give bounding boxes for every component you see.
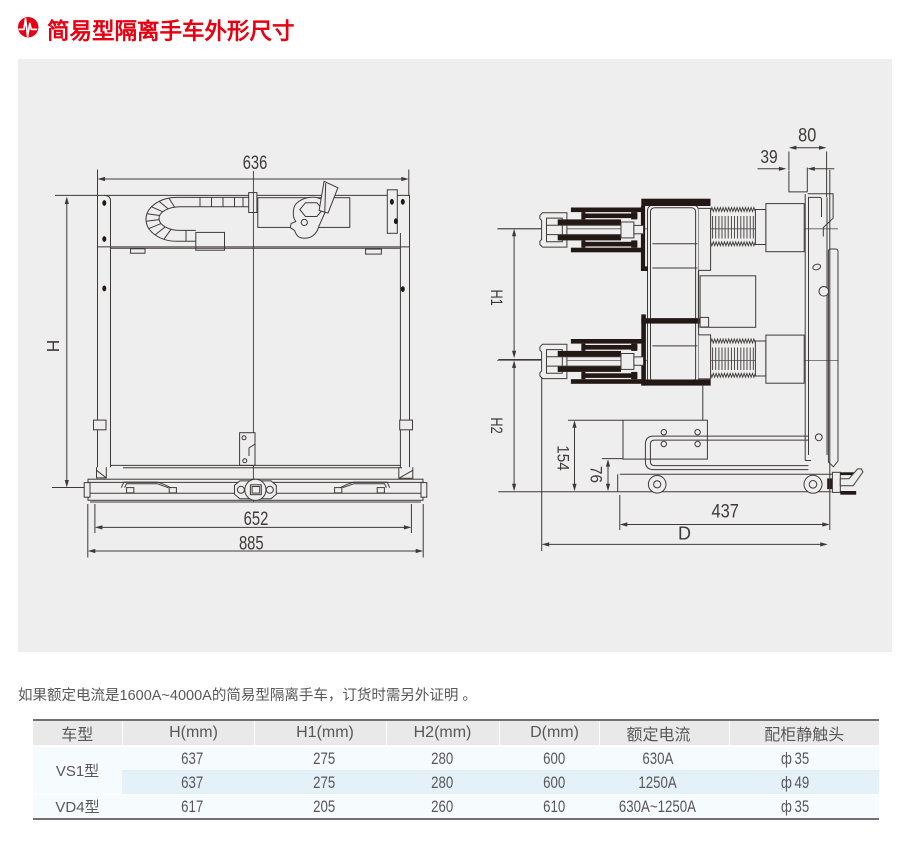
svg-text:D: D (678, 524, 691, 544)
svg-text:76: 76 (586, 466, 604, 483)
svg-text:H: H (43, 340, 63, 353)
svg-text:H2: H2 (487, 417, 505, 433)
svg-text:154: 154 (553, 445, 571, 470)
svg-text:636: 636 (243, 153, 268, 174)
svg-text:80: 80 (798, 126, 816, 147)
svg-text:652: 652 (244, 509, 269, 530)
svg-text:437: 437 (712, 502, 739, 523)
svg-text:H1: H1 (487, 289, 505, 305)
svg-text:39: 39 (760, 147, 777, 167)
